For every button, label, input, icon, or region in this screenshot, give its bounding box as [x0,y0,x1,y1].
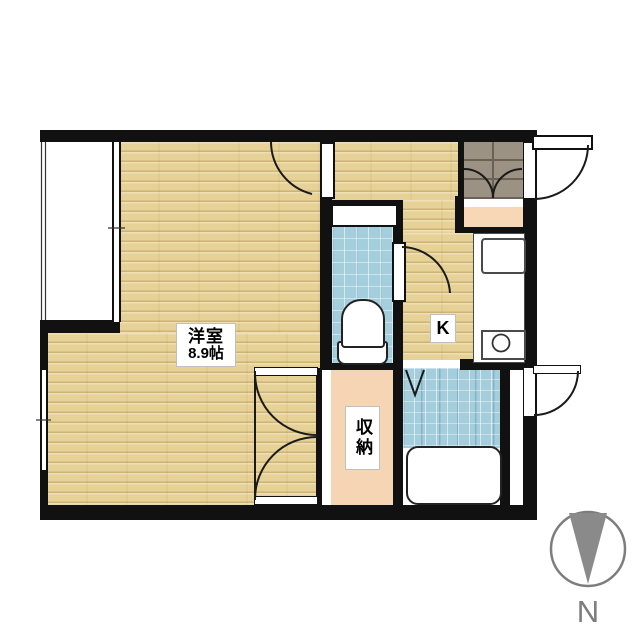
western-room-floor-upper [120,142,320,333]
kitchen-floor-top [332,142,458,200]
door-arc-entrance [534,145,588,199]
entrance-step-gap [464,199,523,207]
wall [393,363,403,505]
rear-door-leaf [533,365,581,374]
closet-door-leaf-top [254,367,318,376]
wall [40,333,48,370]
room-door-leaf [320,142,335,199]
bathtub-icon [406,446,502,505]
compass-rose-icon: N [551,512,625,629]
bathroom-floor [403,368,500,448]
toilet-door-leaf [392,242,406,302]
kitchen-floor-mid [403,200,455,233]
wall [40,130,537,142]
entrance-tile-floor [464,142,523,199]
compass-north-label: N [577,594,599,629]
closet-label: 収納 [345,406,380,470]
right-wall-recess [510,368,523,505]
room-size: 8.9帖 [188,346,224,363]
wall [40,505,537,520]
floor-plan: N 洋室 8.9帖 K 収納 [0,0,640,640]
western-room-label: 洋室 8.9帖 [176,323,236,367]
entrance-step [464,207,523,227]
window-room-west [112,142,121,322]
wall [393,296,403,370]
kitchen-floor-main [403,233,475,363]
bathroom-doorway [403,360,460,368]
entrance-opening [524,143,535,198]
wall [40,320,120,333]
closet-door-leaf-bottom [254,496,318,505]
sink-icon [481,238,526,274]
rear-door-opening [524,368,535,416]
window-toilet [331,204,398,227]
stove-icon [481,330,526,360]
kitchen-label: K [430,314,456,343]
wall [40,470,48,505]
window-room-south [40,370,48,470]
door-arc-rear [534,371,578,415]
balcony-rail [42,142,46,320]
closet-front-edge [316,368,322,505]
wall [458,142,464,199]
kitchen-letter: K [437,318,450,339]
closet-doorway [322,368,331,505]
closet-text: 収納 [350,418,375,458]
entrance-door-leaf [532,135,593,150]
room-name: 洋室 [188,327,224,346]
toilet-icon [341,299,385,348]
balcony-area [46,142,112,320]
